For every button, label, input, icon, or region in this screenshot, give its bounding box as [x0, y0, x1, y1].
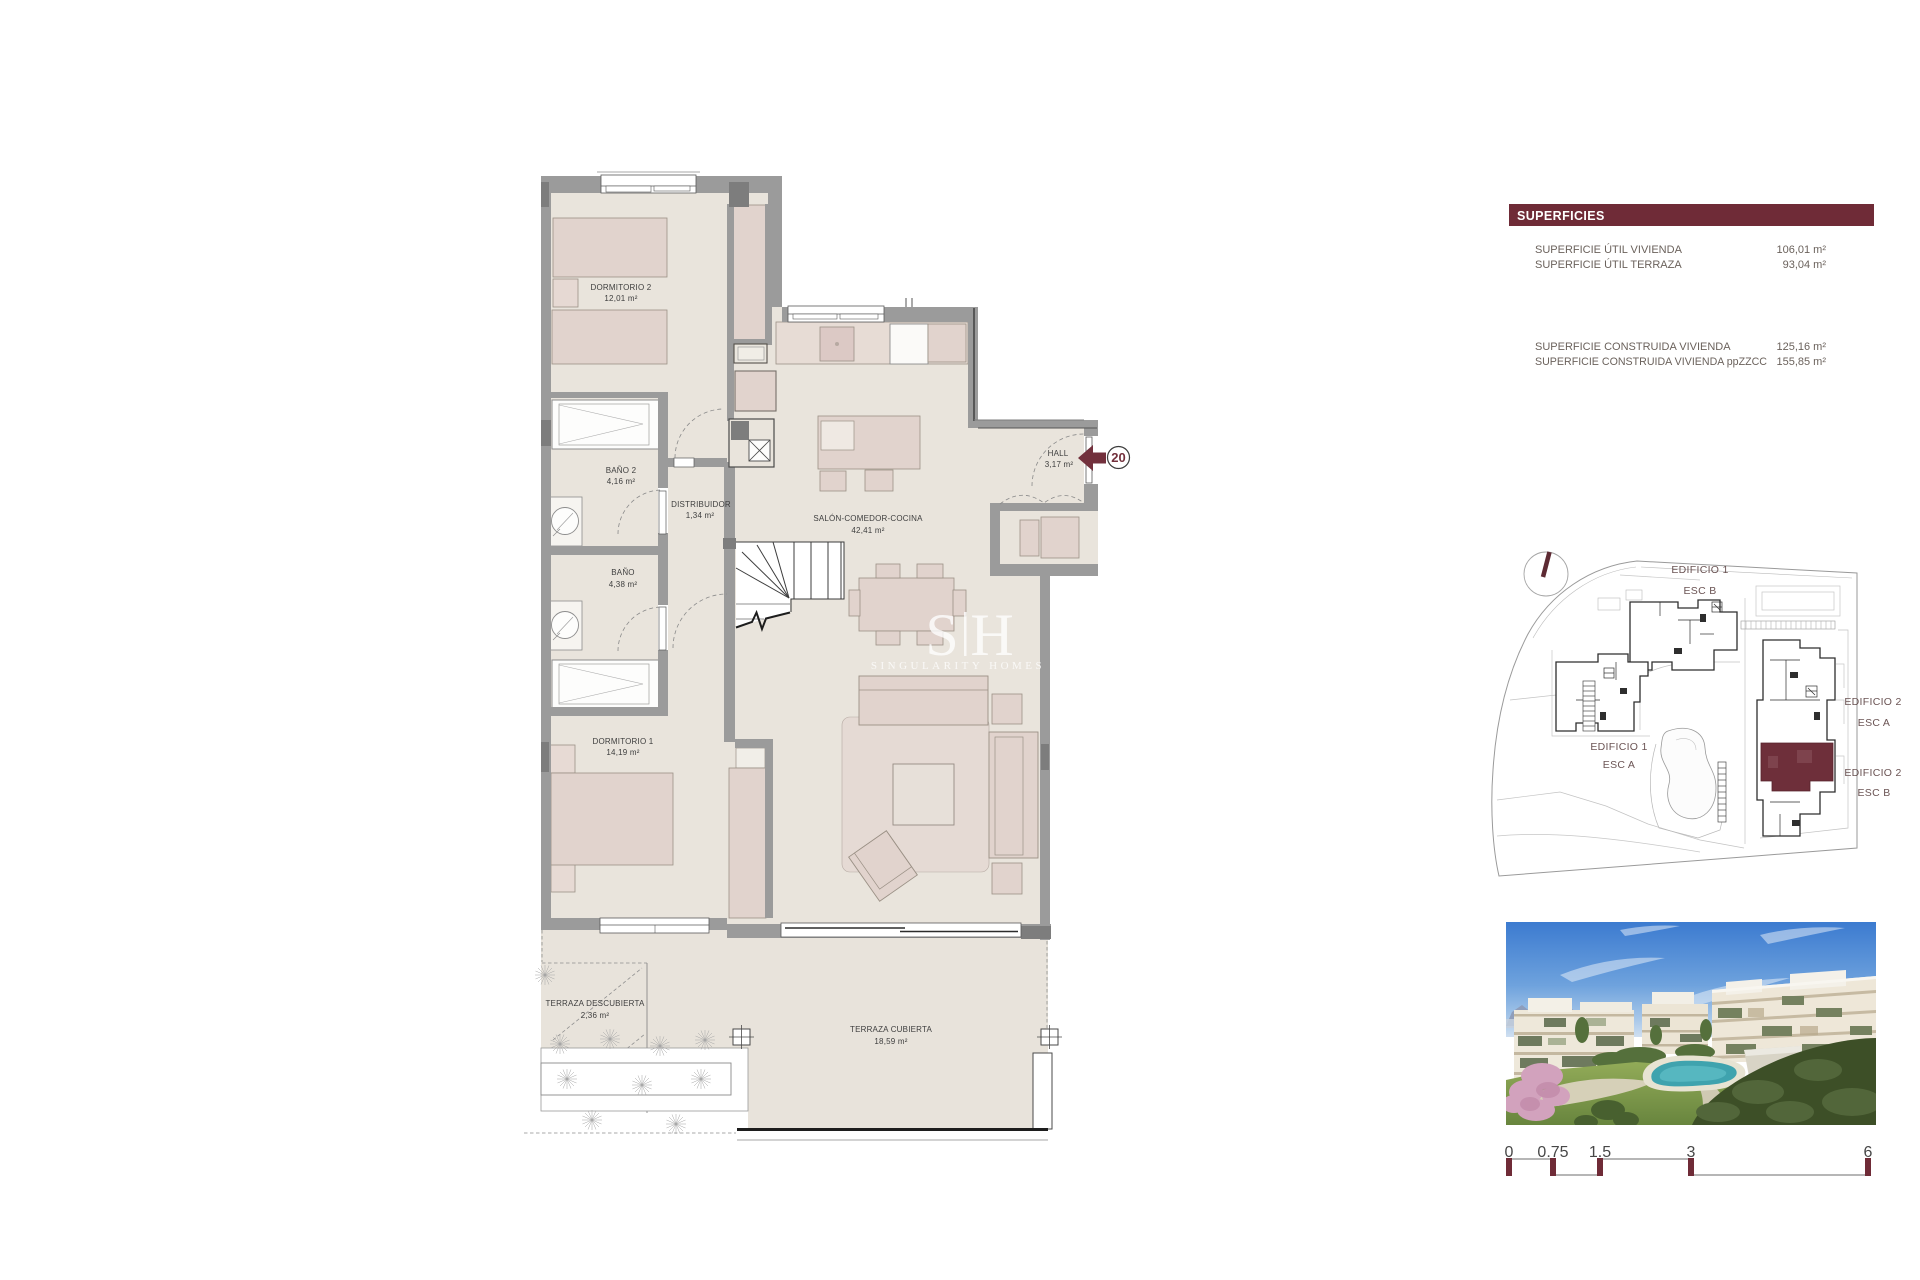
svg-text:SUPERFICIE CONSTRUIDA VIVIENDA: SUPERFICIE CONSTRUIDA VIVIENDA ppZZCC: [1535, 356, 1767, 368]
svg-text:ESC B: ESC B: [1857, 787, 1890, 799]
svg-text:DORMITORIO 2: DORMITORIO 2: [591, 283, 652, 292]
svg-text:18,59 m²: 18,59 m²: [874, 1037, 907, 1046]
svg-text:2,36 m²: 2,36 m²: [581, 1011, 610, 1020]
svg-text:ESC A: ESC A: [1603, 759, 1635, 771]
svg-text:SALÓN-COMEDOR-COCINA: SALÓN-COMEDOR-COCINA: [813, 514, 923, 523]
svg-text:EDIFICIO 2: EDIFICIO 2: [1844, 696, 1901, 708]
svg-text:DISTRIBUIDOR: DISTRIBUIDOR: [671, 500, 731, 509]
svg-text:12,01 m²: 12,01 m²: [604, 294, 637, 303]
svg-text:155,85 m²: 155,85 m²: [1776, 356, 1826, 368]
svg-text:EDIFICIO 1: EDIFICIO 1: [1590, 741, 1647, 753]
svg-text:20: 20: [1111, 450, 1125, 465]
svg-text:3,17 m²: 3,17 m²: [1045, 460, 1074, 469]
svg-text:93,04 m²: 93,04 m²: [1783, 259, 1827, 271]
svg-text:SUPERFICIE ÚTIL VIVIENDA: SUPERFICIE ÚTIL VIVIENDA: [1535, 243, 1683, 256]
svg-text:1,34 m²: 1,34 m²: [686, 511, 715, 520]
svg-text:4,16 m²: 4,16 m²: [607, 477, 636, 486]
svg-text:HALL: HALL: [1048, 449, 1069, 458]
svg-text:ESC B: ESC B: [1683, 585, 1716, 597]
svg-text:H: H: [970, 602, 1013, 668]
svg-text:EDIFICIO 1: EDIFICIO 1: [1671, 564, 1728, 576]
svg-text:125,16 m²: 125,16 m²: [1776, 341, 1826, 353]
svg-text:TERRAZA CUBIERTA: TERRAZA CUBIERTA: [850, 1025, 932, 1034]
svg-text:DORMITORIO 1: DORMITORIO 1: [593, 737, 654, 746]
svg-text:14,19 m²: 14,19 m²: [606, 748, 639, 757]
svg-text:42,41 m²: 42,41 m²: [851, 526, 884, 535]
svg-text:EDIFICIO 2: EDIFICIO 2: [1844, 767, 1901, 779]
svg-text:4,38 m²: 4,38 m²: [609, 580, 638, 589]
svg-text:SINGULARITY HOMES: SINGULARITY HOMES: [871, 660, 1045, 672]
svg-text:TERRAZA DESCUBIERTA: TERRAZA DESCUBIERTA: [545, 999, 645, 1008]
svg-text:SUPERFICIES: SUPERFICIES: [1517, 209, 1605, 223]
svg-text:BAÑO: BAÑO: [611, 568, 634, 577]
svg-text:SUPERFICIE CONSTRUIDA VIVIENDA: SUPERFICIE CONSTRUIDA VIVIENDA: [1535, 341, 1731, 353]
svg-text:106,01 m²: 106,01 m²: [1776, 244, 1826, 256]
svg-text:S: S: [925, 602, 958, 668]
svg-text:BAÑO 2: BAÑO 2: [606, 466, 637, 475]
svg-text:ESC A: ESC A: [1858, 717, 1890, 729]
svg-text:SUPERFICIE ÚTIL TERRAZA: SUPERFICIE ÚTIL TERRAZA: [1535, 258, 1682, 271]
